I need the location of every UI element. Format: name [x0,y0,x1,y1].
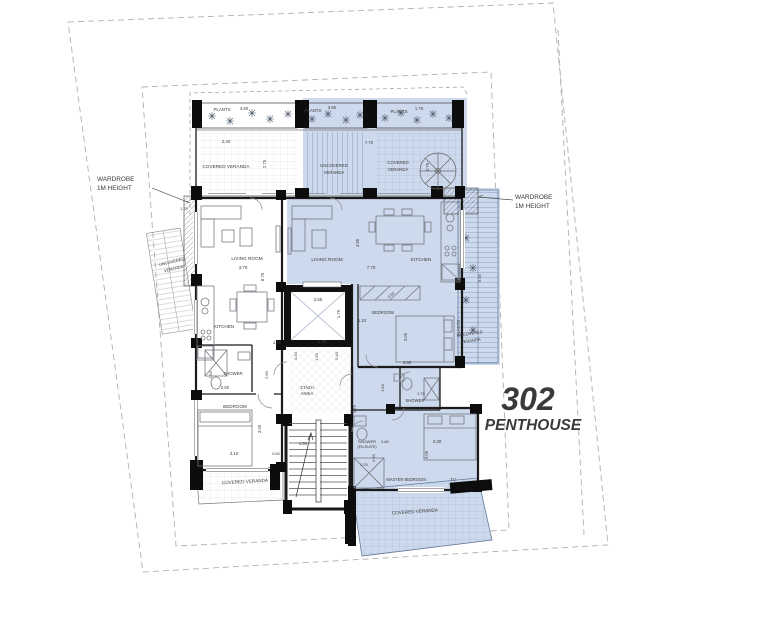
label-living-room-left-dim: 3.70 [239,265,248,270]
label-hall-dim-5: 1.65 [273,340,282,345]
label-living-room-right-dim: 7.70 [367,265,376,270]
label-wardrobe-left-line1: WARDROBE [97,176,134,183]
label-bedroom-right-dim: 3.80 [403,360,412,365]
label-covered-veranda-right-1: COVERED [387,160,408,165]
label-plants-right-dim: 1.75 [415,106,424,111]
label-uncovered-veranda-mid-1: UNCOVERED [320,163,347,168]
label-plants-mid-dim: 3.60 [328,105,337,110]
label-master-vdim: 3.05 [424,450,429,459]
label-bedroom-left-dim2: 0.60 [272,451,281,456]
label-shower-right-dim: 1.75 [417,391,426,396]
label-uncovered-veranda-mid-2: VERANDA [324,170,345,175]
label-shower-left: SHOWER [223,371,242,376]
label-covered-veranda-left: COVERED VERANDA [202,164,250,169]
label-shower-right-vdim2: 0.75 [352,404,357,413]
label-uncovered-veranda-mid-dim: 7.70 [365,140,374,145]
elevator [284,282,352,347]
label-elevator-dim-w: 2.55 [314,297,323,302]
label-bedroom-left-vdim: 3.00 [257,424,262,433]
label-covered-veranda-left-vdim: 2.75 [262,159,267,168]
label-master-bedroom: MASTER BEDROOM [386,477,426,482]
label-bedroom-right-vdim: 3.05 [403,332,408,341]
label-living-room-right-vdim: 3.95 [355,238,360,247]
label-shower-left-vdim: 1.50 [208,370,213,379]
label-wardrobe-left-line2: 1M HEIGHT [97,185,132,192]
label-ensuite-dim2: 1.20 [360,462,369,467]
label-master-tv: TV [450,477,456,482]
label-living-room-left: LIVING ROOM [231,256,262,261]
label-living-room-left-vdim: 8.75 [260,272,265,281]
label-wardrobe-right-line1: WARDROBE [515,194,552,201]
label-covered-veranda-right-vdim: 2.75 [425,162,430,171]
label-kitchen-left: KITCHEN [214,324,235,329]
label-ensuite-vdim: 3.50 [371,453,376,462]
label-hall-dim-3: 1.50 [314,352,319,361]
label-stairs-dim: 1.50 [299,441,308,446]
label-elevator-dim-h: 1.75 [336,309,341,318]
label-hall-dim-6: 2.60 [264,370,269,379]
floor-plan-svg: WARDROBE1M HEIGHTWARDROBE1M HEIGHTPLANTS… [0,0,780,625]
label-hall-dim-right: 1.10 [358,318,367,323]
label-ensuite-1: SHOWER [358,439,376,444]
label-plants-right: PLANTS [390,109,407,114]
label-unit-number: 302 [501,381,555,417]
label-ensuite-2: (EN-SUITE) [357,445,376,449]
label-hall-dim-1: 2.00 [318,339,327,344]
label-bedroom-left: BEDROOM [223,404,247,409]
label-stair-area-2: ΑΝΙΚΑ [301,391,314,396]
label-shower-right-vdim: 1.50 [380,383,385,392]
label-covered-veranda-right-2: VERANDA [388,167,409,172]
label-ensuite-dim1: 0.60 [381,439,390,444]
label-bedroom-left-dim: 3.10 [230,451,239,456]
label-living-room-right: LIVING ROOM [311,257,342,262]
label-kitchen-right: KITCHEN [411,257,432,262]
label-hall-dim-2: 0.40 [293,351,298,360]
label-unit-name: PENTHOUSE [485,417,582,434]
staircase [289,420,347,502]
floor-plan-canvas: WARDROBE1M HEIGHTWARDROBE1M HEIGHTPLANTS… [0,0,780,625]
label-master-dim: 3.30 [433,439,442,444]
label-hall-dim-4: 0.40 [334,351,339,360]
label-plants-left-dim: 3.60 [240,106,249,111]
label-veranda-left-dim: 2.40 [222,139,231,144]
label-stair-area-1: ΣΤΑΣΗ [300,385,313,390]
label-bedroom-right: BEDROOM [372,310,394,315]
label-plants-mid: PLANTS [304,108,321,113]
label-shower-right: SHOWER [405,398,424,403]
label-wardrobe-left-dim: 1.70 [180,206,189,211]
label-wardrobe-right-line2: 1M HEIGHT [515,203,550,210]
label-plants-left: PLANTS [213,107,230,112]
label-right-strip-vdim: 6.65 [477,273,482,282]
label-shower-left-dim: 2.50 [221,385,230,390]
